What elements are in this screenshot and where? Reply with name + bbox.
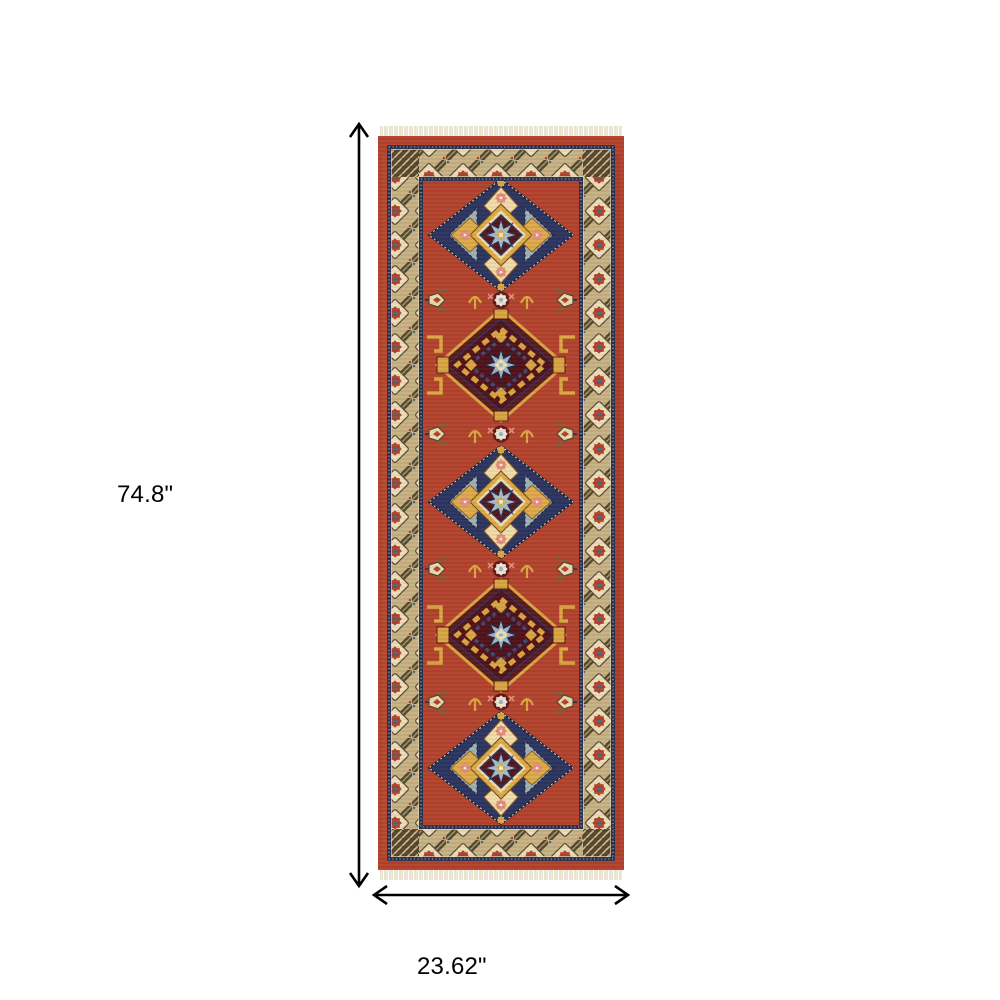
width-dimension-label: 23.62" (417, 954, 487, 980)
rug-body (378, 136, 624, 870)
width-dimension-arrow (366, 882, 636, 908)
rug-image (378, 126, 624, 880)
height-dimension-label: 74.8" (117, 482, 173, 508)
rug-fringe-bottom (380, 870, 622, 880)
height-dimension-arrow (344, 118, 376, 892)
rug-fringe-top (380, 126, 622, 136)
dimension-figure: 74.8" 23.62" (0, 0, 1000, 1000)
